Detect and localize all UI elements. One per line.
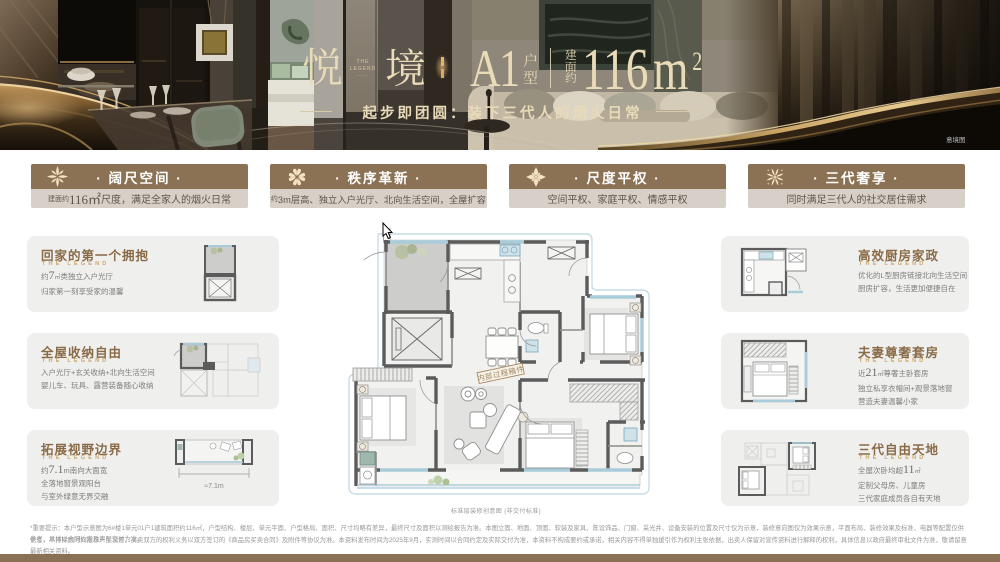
svg-text:≈7.1m: ≈7.1m [204, 483, 224, 490]
svg-text:意境图: 意境图 [946, 135, 966, 144]
